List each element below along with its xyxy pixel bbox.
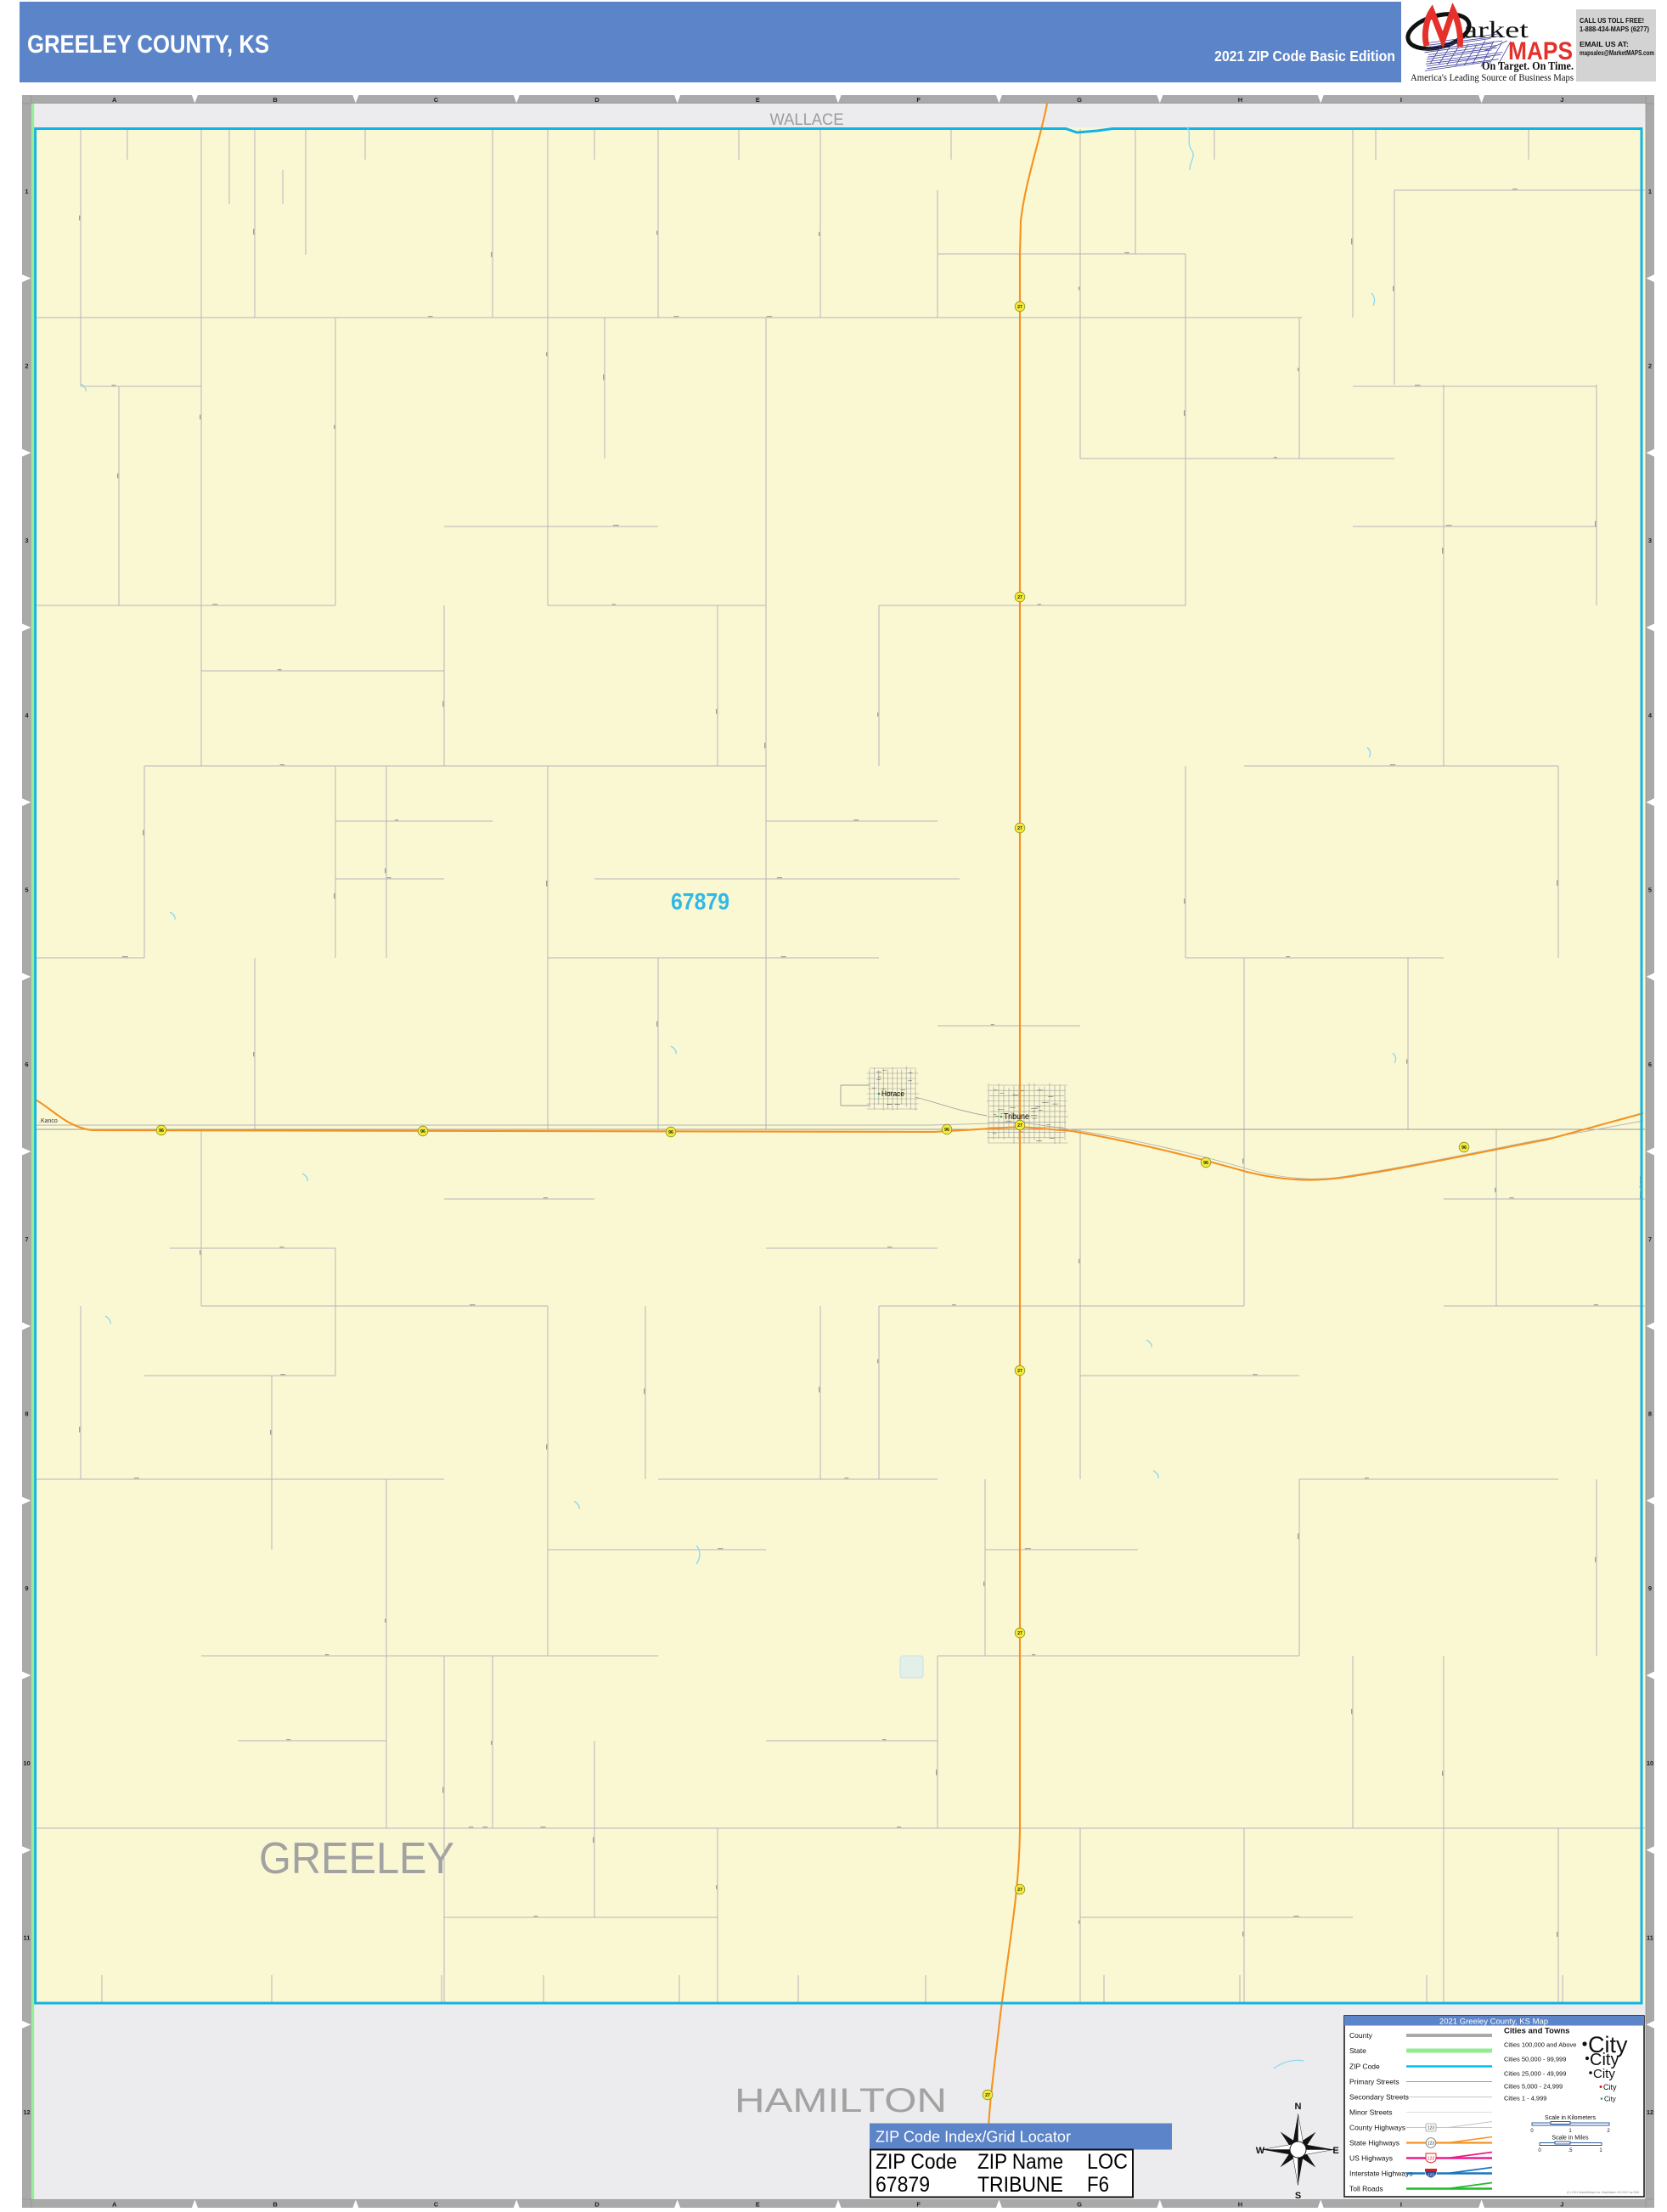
svg-text:9: 9 <box>25 1584 28 1592</box>
svg-text:HAMILTON: HAMILTON <box>735 2082 947 2119</box>
svg-text:City: City <box>1604 2096 1616 2103</box>
svg-text:ZIP Code: ZIP Code <box>1349 2063 1380 2071</box>
svg-text:Cities 5,000 - 24,999: Cities 5,000 - 24,999 <box>1504 2083 1563 2091</box>
svg-text:N: N <box>1295 2102 1302 2112</box>
svg-text:G: G <box>1077 2201 1082 2209</box>
svg-text:CALL US TOLL FREE!: CALL US TOLL FREE! <box>1580 17 1644 25</box>
svg-text:J: J <box>1560 96 1563 104</box>
svg-text:27: 27 <box>1017 1123 1022 1129</box>
svg-text:TRIBUNE: TRIBUNE <box>977 2173 1063 2197</box>
svg-text:6: 6 <box>25 1061 28 1068</box>
svg-text:GREELEY: GREELEY <box>259 1834 454 1883</box>
svg-text:J: J <box>1560 2201 1563 2209</box>
svg-text:5: 5 <box>25 886 28 894</box>
svg-text:67879: 67879 <box>876 2173 930 2197</box>
svg-text:1: 1 <box>25 188 28 195</box>
svg-text:96: 96 <box>159 1129 164 1134</box>
svg-text:mapsales@MarketMAPS.com: mapsales@MarketMAPS.com <box>1580 49 1654 57</box>
svg-text:123: 123 <box>1428 2142 1435 2147</box>
svg-text:11: 11 <box>1647 1934 1653 1942</box>
svg-text:.Kanco: .Kanco <box>39 1118 58 1124</box>
svg-text:Cities 1 - 4,999: Cities 1 - 4,999 <box>1504 2095 1546 2102</box>
svg-text:5: 5 <box>1648 886 1652 894</box>
svg-text:Interstate Highways: Interstate Highways <box>1349 2170 1413 2178</box>
svg-text:7: 7 <box>1648 1235 1652 1243</box>
svg-text:123: 123 <box>1428 2173 1434 2177</box>
svg-text:State Highways: State Highways <box>1349 2139 1399 2147</box>
svg-text:City: City <box>1603 2083 1617 2091</box>
svg-text:Minor Streets: Minor Streets <box>1349 2108 1393 2117</box>
svg-text:2021 ZIP Code Basic Edition: 2021 ZIP Code Basic Edition <box>1214 48 1395 65</box>
svg-text:Scale in Miles: Scale in Miles <box>1552 2136 1589 2142</box>
svg-text:2: 2 <box>25 363 28 370</box>
svg-text:F: F <box>916 96 921 104</box>
svg-text:27: 27 <box>1017 305 1022 310</box>
svg-text:A: A <box>112 2201 117 2209</box>
svg-text:A: A <box>112 96 117 104</box>
svg-text:F: F <box>916 2201 921 2209</box>
svg-text:96: 96 <box>944 1128 949 1133</box>
svg-text:3: 3 <box>1648 537 1652 544</box>
svg-text:10: 10 <box>23 1759 30 1767</box>
svg-text:3: 3 <box>25 537 28 544</box>
svg-text:I: I <box>1400 96 1402 104</box>
svg-text:27: 27 <box>1017 595 1022 600</box>
svg-text:Cities and Towns: Cities and Towns <box>1504 2027 1569 2036</box>
svg-text:S: S <box>1295 2191 1301 2201</box>
svg-text:D: D <box>594 96 600 104</box>
svg-text:Horace: Horace <box>881 1089 904 1099</box>
svg-text:H: H <box>1238 2201 1242 2209</box>
svg-text:US Highways: US Highways <box>1349 2154 1393 2163</box>
svg-text:F6: F6 <box>1087 2173 1109 2197</box>
svg-text:Cities 50,000 - 99,999: Cities 50,000 - 99,999 <box>1504 2056 1566 2063</box>
svg-text:ZIP Code: ZIP Code <box>876 2150 957 2174</box>
svg-text:W: W <box>1256 2146 1265 2156</box>
svg-text:96: 96 <box>1461 1145 1467 1151</box>
svg-text:C: C <box>434 96 439 104</box>
svg-text:2021 Greeley County, KS Map: 2021 Greeley County, KS Map <box>1439 2018 1548 2027</box>
svg-text:96: 96 <box>420 1129 425 1134</box>
svg-text:Primary Streets: Primary Streets <box>1349 2078 1399 2086</box>
svg-text:8: 8 <box>25 1410 28 1418</box>
svg-text:Cities 100,000 and Above: Cities 100,000 and Above <box>1504 2041 1576 2049</box>
svg-text:Tribune: Tribune <box>1004 1112 1029 1122</box>
svg-text:I: I <box>1400 2201 1402 2209</box>
svg-text:6: 6 <box>1648 1061 1652 1068</box>
svg-text:27: 27 <box>1017 826 1022 831</box>
svg-text:27: 27 <box>985 2093 990 2098</box>
svg-text:(C) 2021 MarketMaps Inc. MapM: (C) 2021 MarketMaps Inc. MapMaker, KS 20… <box>1567 2191 1639 2194</box>
svg-text:ZIP Code Index/Grid Locator: ZIP Code Index/Grid Locator <box>876 2129 1071 2146</box>
svg-text:City: City <box>1593 2067 1615 2081</box>
svg-text:E: E <box>756 96 760 104</box>
svg-text:C: C <box>434 2201 439 2209</box>
svg-text:State: State <box>1349 2046 1366 2055</box>
svg-text:E: E <box>756 2201 760 2209</box>
svg-text:123: 123 <box>1428 2126 1435 2131</box>
svg-text:Secondary Streets: Secondary Streets <box>1349 2093 1409 2102</box>
svg-text:LOC: LOC <box>1087 2150 1128 2174</box>
svg-text:8: 8 <box>1648 1410 1652 1418</box>
svg-text:12: 12 <box>23 2108 30 2116</box>
svg-text:67879: 67879 <box>671 888 729 915</box>
svg-text:9: 9 <box>1648 1584 1652 1592</box>
svg-text:On Target. On Time.: On Target. On Time. <box>1482 59 1574 72</box>
svg-text:11: 11 <box>24 1934 31 1942</box>
svg-text:B: B <box>273 2201 278 2209</box>
svg-text:ZIP Name: ZIP Name <box>977 2150 1063 2174</box>
svg-text:1: 1 <box>1648 188 1652 195</box>
svg-text:EMAIL US AT:: EMAIL US AT: <box>1580 41 1629 48</box>
svg-text:27: 27 <box>1017 1631 1022 1636</box>
svg-text:B: B <box>273 96 278 104</box>
svg-text:.5: .5 <box>1568 2148 1573 2153</box>
svg-text:1-888-434-MAPS (6277): 1-888-434-MAPS (6277) <box>1580 25 1649 33</box>
svg-text:America's Leading Source of B: America's Leading Source of Business Map… <box>1411 73 1574 83</box>
svg-text:E: E <box>1332 2146 1338 2156</box>
svg-text:H: H <box>1238 96 1242 104</box>
svg-text:123: 123 <box>1428 2157 1435 2162</box>
svg-text:12: 12 <box>1647 2108 1653 2116</box>
svg-text:7: 7 <box>25 1235 28 1243</box>
svg-text:96: 96 <box>1203 1161 1208 1166</box>
svg-text:96: 96 <box>668 1130 673 1135</box>
svg-text:Scale in Kilometers: Scale in Kilometers <box>1545 2115 1596 2121</box>
svg-text:County Highways: County Highways <box>1349 2124 1405 2132</box>
svg-text:2: 2 <box>1648 363 1652 370</box>
svg-text:27: 27 <box>1017 1369 1022 1374</box>
svg-text:10: 10 <box>1647 1759 1653 1767</box>
svg-text:Cities 25,000 - 49,999: Cities 25,000 - 49,999 <box>1504 2070 1566 2078</box>
svg-text:G: G <box>1077 96 1082 104</box>
svg-text:Toll Roads: Toll Roads <box>1349 2185 1383 2193</box>
svg-text:GREELEY COUNTY, KS: GREELEY COUNTY, KS <box>27 31 269 59</box>
svg-text:D: D <box>594 2201 600 2209</box>
svg-text:27: 27 <box>1017 1888 1022 1893</box>
svg-text:WALLACE: WALLACE <box>770 111 844 129</box>
svg-text:County: County <box>1349 2031 1373 2040</box>
